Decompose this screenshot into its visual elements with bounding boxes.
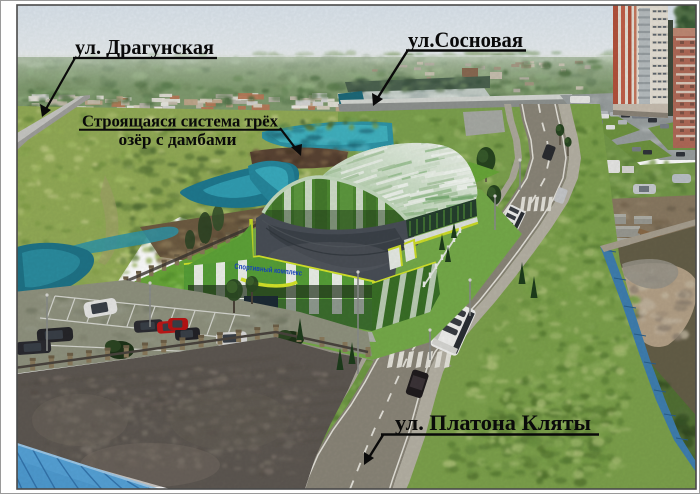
svg-text:озёр с дамбами: озёр с дамбами <box>119 130 237 149</box>
svg-text:ул. Платона Кляты: ул. Платона Кляты <box>395 410 591 435</box>
svg-text:ул. Драгунская: ул. Драгунская <box>75 35 214 59</box>
svg-text:Строящаяся система трёх: Строящаяся система трёх <box>82 112 278 131</box>
svg-text:ул.Сосновая: ул.Сосновая <box>408 27 523 52</box>
